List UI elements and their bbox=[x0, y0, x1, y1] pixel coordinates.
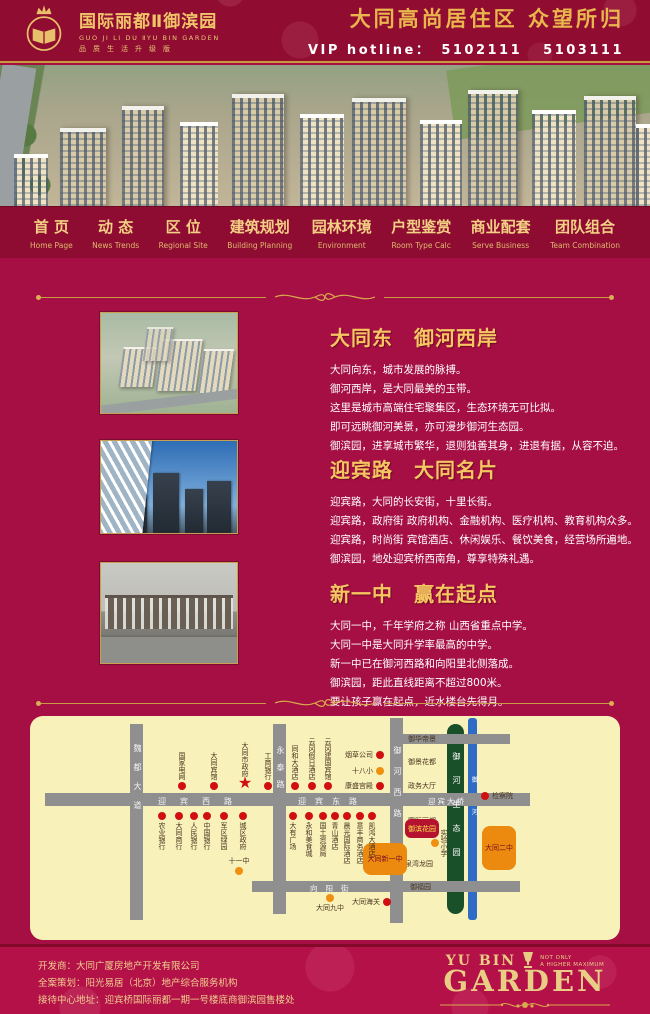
section-title: 新一中 赢在起点 bbox=[330, 578, 533, 607]
map-poi-label: 国家电网 bbox=[178, 752, 186, 780]
divider-dot bbox=[609, 701, 614, 706]
map-marker-dot bbox=[326, 894, 334, 902]
flourish-icon bbox=[270, 696, 380, 710]
text-line: 大同一中，千年学府之称 山西省重点中学。 bbox=[330, 617, 533, 636]
aerial-render-photo bbox=[100, 312, 238, 414]
nav-label-zh: 建筑规划 bbox=[227, 216, 292, 237]
nav-item-1[interactable]: 首 页Home Page bbox=[30, 216, 73, 250]
map-poi-label: 永和美食城 bbox=[305, 822, 313, 857]
logo-title: 国际丽都Ⅱ御滨园 bbox=[79, 7, 220, 32]
nav-label-en: Serve Business bbox=[471, 241, 531, 250]
road-label-v3: 御河西路 bbox=[392, 746, 403, 830]
map-poi-label: 烟草公司 bbox=[345, 751, 373, 759]
nav-item-2[interactable]: 动 态News Trends bbox=[92, 216, 139, 250]
nav-label-zh: 动 态 bbox=[92, 216, 139, 237]
hero-tower bbox=[636, 124, 650, 206]
section-title: 迎宾路 大同名片 bbox=[330, 454, 638, 483]
nav-label-en: News Trends bbox=[92, 241, 139, 250]
text-line: 即可远眺御河美景，亦可漫步御河生态园。 bbox=[330, 418, 624, 437]
nav-label-zh: 区 位 bbox=[159, 216, 208, 237]
nav-item-4[interactable]: 建筑规划Building Planning bbox=[227, 216, 292, 250]
map-marker-dot bbox=[291, 782, 299, 790]
map-poi-label: 云冈假日酒店 bbox=[308, 738, 316, 780]
map-marker-dot bbox=[376, 751, 384, 759]
map-poi: 御华帝景 bbox=[408, 726, 436, 745]
section-title: 大同东 御河西岸 bbox=[330, 322, 624, 351]
road-label-bridge: 迎宾大桥 bbox=[428, 796, 466, 807]
logo[interactable]: 国际丽都Ⅱ御滨园 GUO JI LI DU ⅡYU BIN GARDEN 品质生… bbox=[0, 5, 220, 57]
map-poi-label: 青山酒店 bbox=[331, 822, 339, 850]
map-marker-dot bbox=[289, 812, 297, 820]
footer: 开发商：大同广厦房地产开发有限公司 全案策划：阳光易居（北京）地产综合服务机构 … bbox=[0, 944, 650, 1014]
logo-tagline: 品质生活升级版 bbox=[79, 44, 220, 54]
map-poi-label: 政务大厅 bbox=[408, 782, 436, 790]
map-panel: 御河生态园 御河 迎宾西路 迎宾东路 迎宾大桥 向阳街 魏都大道 永泰路 御河西… bbox=[30, 716, 620, 940]
map-poi-label: 农业银行 bbox=[158, 822, 166, 850]
nav-label-en: Regional Site bbox=[159, 241, 208, 250]
map-poi-label: 国土资源局 bbox=[319, 822, 327, 857]
map-poi-label: 御福园 bbox=[410, 883, 431, 891]
map-poi-label: 中国银行 bbox=[203, 822, 211, 850]
map-marker-dot bbox=[376, 782, 384, 790]
map-marker-dot bbox=[264, 782, 272, 790]
map-marker-dot bbox=[368, 812, 376, 820]
map-marker-dot bbox=[308, 782, 316, 790]
map-marker-dot bbox=[220, 812, 228, 820]
text-line: 迎宾路，大同的长安街，十里长街。 bbox=[330, 493, 638, 512]
text-line: 迎宾路，政府街 政府机构、金融机构、医疗机构、教育机构众多。 bbox=[330, 512, 638, 531]
hero-tower bbox=[232, 94, 284, 206]
map-marker-dot bbox=[178, 782, 186, 790]
logo-subtitle: GUO JI LI DU ⅡYU BIN GARDEN bbox=[79, 34, 220, 42]
map-marker-dot bbox=[481, 792, 489, 800]
hero-tower bbox=[60, 128, 106, 206]
hero-tower bbox=[352, 98, 406, 206]
ornament-divider-bottom bbox=[36, 696, 614, 710]
map-poi-label: 意丰商务酒店 bbox=[356, 822, 364, 864]
nav-label-zh: 团队组合 bbox=[550, 216, 620, 237]
nav-label-zh: 首 页 bbox=[30, 216, 73, 237]
nav-label-zh: 园林环境 bbox=[312, 216, 372, 237]
page: 国际丽都Ⅱ御滨园 GUO JI LI DU ⅡYU BIN GARDEN 品质生… bbox=[0, 0, 650, 1014]
map-poi-label: 大有广场 bbox=[289, 822, 297, 850]
school-photo bbox=[100, 562, 238, 664]
map-poi-label: 工商银行 bbox=[264, 752, 272, 780]
nav-label-en: Building Planning bbox=[227, 241, 292, 250]
ornament-divider-top bbox=[36, 290, 614, 304]
map-poi-label: 大同九中 bbox=[316, 904, 344, 912]
map-marker-dot bbox=[305, 812, 313, 820]
road-label-south: 向阳街 bbox=[310, 883, 357, 894]
map-poi-label: 实验小学 bbox=[440, 829, 448, 857]
logo-text: 国际丽都Ⅱ御滨园 GUO JI LI DU ⅡYU BIN GARDEN 品质生… bbox=[79, 7, 220, 54]
flourish-icon bbox=[270, 290, 380, 304]
hero-image bbox=[0, 65, 650, 206]
map-poi-label: 大同海关 bbox=[352, 898, 380, 906]
map-marker-dot bbox=[324, 782, 332, 790]
map-poi-label: 凯鸿大酒店 bbox=[368, 822, 376, 857]
hero-tower bbox=[468, 90, 518, 206]
hero-tower bbox=[14, 154, 48, 206]
map-poi: 御福园 bbox=[410, 874, 431, 893]
map-marker-dot bbox=[343, 812, 351, 820]
developer-line: 开发商：大同广厦房地产开发有限公司 bbox=[38, 958, 295, 975]
map-marker-dot bbox=[356, 812, 364, 820]
map-poi-label: 大同商行 bbox=[175, 822, 183, 850]
text-line: 御河西岸，是大同最美的玉带。 bbox=[330, 380, 624, 399]
map-poi-label: 康盛宫殿 bbox=[345, 782, 373, 790]
map-poi-label: 十八小 bbox=[352, 767, 373, 775]
map-marker-dot bbox=[431, 839, 439, 847]
nav-item-3[interactable]: 区 位Regional Site bbox=[159, 216, 208, 250]
map-poi-label: 十一中 bbox=[229, 857, 250, 865]
section-body: 迎宾路，大同的长安街，十里长街。 迎宾路，政府街 政府机构、金融机构、医疗机构、… bbox=[330, 493, 638, 569]
map-marker-dot bbox=[376, 767, 384, 775]
text-line: 大同一中是大同升学率最高的中学。 bbox=[330, 636, 533, 655]
main-content: 大同东 御河西岸 大同向东，城市发展的脉搏。 御河西岸，是大同最美的玉带。 这里… bbox=[0, 258, 650, 944]
brand-garden-text: GARDEN bbox=[430, 966, 620, 996]
nav-item-6[interactable]: 户型鉴赏Room Type Calc bbox=[391, 216, 451, 250]
text-line: 新一中已在御河西路和向阳里北侧落成。 bbox=[330, 655, 533, 674]
park-label: 御河生态园 bbox=[451, 752, 462, 872]
hero-tower bbox=[584, 96, 636, 206]
map-poi-label: 云冈建国宾馆 bbox=[324, 738, 332, 780]
nav-label-en: Team Combination bbox=[550, 241, 620, 250]
map-marker-dot bbox=[210, 782, 218, 790]
nav-item-7[interactable]: 商业配套Serve Business bbox=[471, 216, 531, 250]
map-marker-dot bbox=[235, 867, 243, 875]
nav-label-zh: 户型鉴赏 bbox=[391, 216, 451, 237]
city-street-photo bbox=[100, 440, 238, 534]
hero-tower bbox=[420, 120, 462, 206]
nav-label-en: Home Page bbox=[30, 241, 73, 250]
map-poi-label: 御景花都 bbox=[408, 758, 436, 766]
footer-info: 开发商：大同广厦房地产开发有限公司 全案策划：阳光易居（北京）地产综合服务机构 … bbox=[38, 958, 295, 1009]
map-marker-dot bbox=[158, 812, 166, 820]
map-marker-dot bbox=[175, 812, 183, 820]
road-xiangyang-street bbox=[252, 881, 520, 892]
text-line: 迎宾路，时尚街 宾馆酒店、休闲娱乐、餐饮美食，经营场所遍地。 bbox=[330, 531, 638, 550]
map-poi-label: 御华帝景 bbox=[408, 735, 436, 743]
planner-line: 全案策划：阳光易居（北京）地产综合服务机构 bbox=[38, 975, 295, 992]
floral-flourish-icon bbox=[440, 999, 610, 1011]
hero-tower bbox=[532, 110, 576, 206]
nav-item-8[interactable]: 团队组合Team Combination bbox=[550, 216, 620, 250]
map-poi-label: 大同市政府 bbox=[241, 742, 249, 777]
text-line: 大同向东，城市发展的脉搏。 bbox=[330, 361, 624, 380]
map-poi-label: 大同宾馆 bbox=[210, 752, 218, 780]
hotline-numbers: 5102111 5103111 bbox=[441, 43, 624, 58]
road-label-east: 迎宾东路 bbox=[298, 796, 366, 807]
hotline-label: VIP hotline： bbox=[308, 43, 431, 58]
map-marker-dot bbox=[383, 898, 391, 906]
map-poi-label: 人民银行 bbox=[190, 822, 198, 850]
map-marker-dot bbox=[331, 812, 339, 820]
government-star-icon: ★ bbox=[238, 775, 252, 791]
map-project-block: 御滨花园 bbox=[405, 819, 439, 838]
section-yingbin-road: 迎宾路 大同名片 迎宾路，大同的长安街，十里长街。 迎宾路，政府街 政府机构、金… bbox=[0, 440, 650, 569]
hero-tower bbox=[300, 114, 344, 206]
hero-tower bbox=[180, 122, 218, 206]
nav-item-5[interactable]: 园林环境Environment bbox=[312, 216, 372, 250]
vip-hotline: VIP hotline：5102111 5103111 bbox=[308, 39, 624, 58]
header-right: 大同高尚居住区 众望所归 VIP hotline：5102111 5103111 bbox=[308, 3, 650, 58]
map-marker-dot bbox=[203, 812, 211, 820]
road-label-v2: 永泰路 bbox=[275, 746, 286, 797]
divider-dot bbox=[609, 295, 614, 300]
map-marker-dot bbox=[319, 812, 327, 820]
section-new-no1-school: 新一中 赢在起点 大同一中，千年学府之称 山西省重点中学。 大同一中是大同升学率… bbox=[0, 562, 650, 712]
address-line: 接待中心地址：迎宾桥国际丽都一期一号楼底商御滨园售楼处 bbox=[38, 992, 295, 1009]
nav-label-zh: 商业配套 bbox=[471, 216, 531, 237]
road-label-west: 迎宾西路 bbox=[158, 796, 246, 807]
nav-label-en: Environment bbox=[312, 241, 372, 250]
map-poi-label: 军区绿园 bbox=[220, 822, 228, 850]
map-poi-label: 检察院 bbox=[492, 792, 513, 800]
header-slogan: 大同高尚居住区 众望所归 bbox=[308, 3, 624, 33]
yubin-garden-logo: YU BIN NOT ONLY A HIGHER MAXIMUM GARDEN bbox=[430, 951, 620, 1014]
text-line: 这里是城市高端住宅聚集区，生态环境无可比拟。 bbox=[330, 399, 624, 418]
map-poi-label: 晨光国际酒店 bbox=[343, 822, 351, 864]
section-donghe: 大同东 御河西岸 大同向东，城市发展的脉搏。 御河西岸，是大同最美的玉带。 这里… bbox=[0, 312, 650, 456]
map-poi-label: 同和大酒店 bbox=[291, 745, 299, 780]
text-line: 御滨园，距此直线距离不超过800米。 bbox=[330, 674, 533, 693]
map-poi: 御景花都 bbox=[408, 749, 436, 768]
nav-label-en: Room Type Calc bbox=[391, 241, 451, 250]
brand-tagline-1: NOT ONLY bbox=[540, 955, 604, 962]
crown-book-emblem-icon bbox=[18, 5, 70, 57]
nav-bar: 首 页Home Page动 态News Trends区 位Regional Si… bbox=[0, 206, 650, 258]
road-label-v1: 魏都大道 bbox=[132, 744, 143, 820]
map-marker-dot bbox=[190, 812, 198, 820]
map-marker-dot bbox=[239, 812, 247, 820]
map-poi: 政务大厅 bbox=[408, 773, 436, 792]
map-school-block: 大同二中 bbox=[482, 826, 516, 870]
map-poi-label: 城区政府 bbox=[239, 822, 247, 850]
header: 国际丽都Ⅱ御滨园 GUO JI LI DU ⅡYU BIN GARDEN 品质生… bbox=[0, 0, 650, 63]
hero-tower bbox=[122, 106, 164, 206]
river-label: 御河 bbox=[469, 776, 479, 841]
